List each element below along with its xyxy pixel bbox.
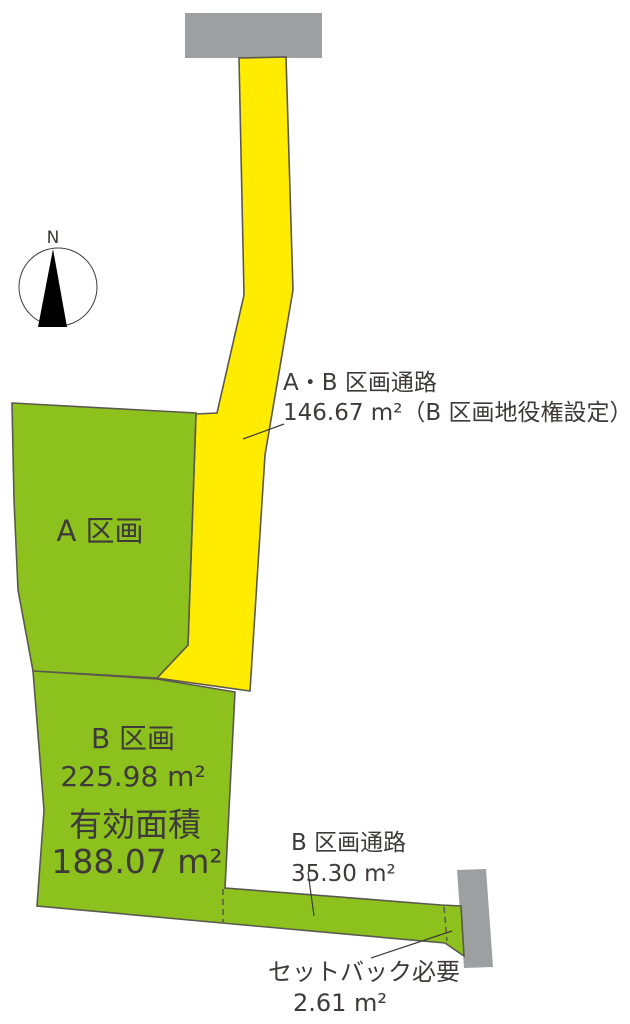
setback-area-label: 2.61 m² (293, 989, 387, 1017)
parcel-b-effective-title: 有効面積 (69, 805, 201, 844)
compass: N (19, 228, 97, 327)
compass-north-label: N (47, 228, 60, 248)
passage-ab-area-label: 146.67 m²（B 区画地役権設定） (283, 400, 630, 426)
passage-b-area-label: 35.30 m² (291, 861, 396, 887)
parcel-b-label: B 区画 (91, 722, 175, 755)
site-plan-canvas: N A・B 区画通路 146.67 m²（B 区画地役権設定） A 区画 B 区… (0, 0, 630, 1024)
passage-ab-label: A・B 区画通路 (283, 370, 437, 396)
parcel-b-area-label: 225.98 m² (60, 760, 205, 793)
parcel-a-label: A 区画 (56, 514, 143, 548)
land-plot-diagram: N A・B 区画通路 146.67 m²（B 区画地役権設定） A 区画 B 区… (0, 0, 630, 1024)
compass-needle-icon (38, 249, 67, 327)
passage-b-label: B 区画通路 (291, 830, 406, 856)
parcel-b-effective-area: 188.07 m² (51, 842, 222, 881)
setback-label: セットバック必要 (268, 958, 460, 986)
road-top (185, 13, 322, 58)
